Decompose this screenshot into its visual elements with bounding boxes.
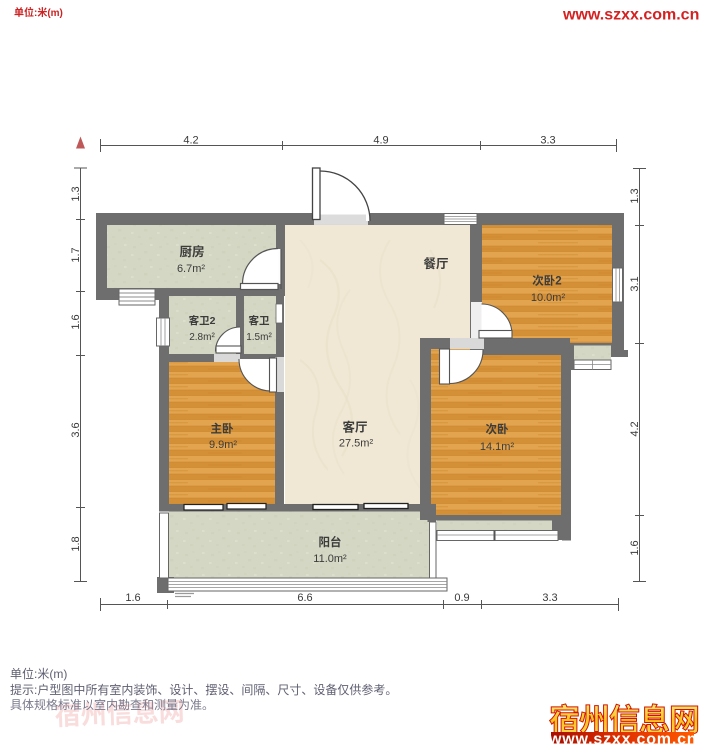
svg-text:客卫2: 客卫2: [189, 314, 216, 327]
svg-text:www.szxx.com.cn: www.szxx.com.cn: [562, 7, 699, 24]
svg-text:11.0m²: 11.0m²: [313, 553, 347, 565]
svg-text:6.7m²: 6.7m²: [177, 263, 205, 275]
svg-text:厨房: 厨房: [179, 244, 204, 259]
svg-text:3.6: 3.6: [70, 422, 82, 437]
svg-text:4.2: 4.2: [183, 135, 198, 147]
svg-text:3.1: 3.1: [629, 276, 641, 291]
svg-text:10.0m²: 10.0m²: [531, 292, 566, 304]
svg-text:具体规格标准以室内勘查和测量为准。: 具体规格标准以室内勘查和测量为准。: [10, 697, 214, 712]
svg-text:3.3: 3.3: [540, 135, 555, 147]
svg-text:单位:米(m): 单位:米(m): [10, 666, 67, 681]
svg-text:1.3: 1.3: [629, 188, 641, 203]
svg-text:www.szxx.com.cn: www.szxx.com.cn: [548, 731, 697, 748]
svg-text:餐厅: 餐厅: [423, 256, 448, 271]
svg-text:4.2: 4.2: [629, 421, 641, 436]
svg-text:1.6: 1.6: [70, 314, 82, 329]
svg-text:提示:户型图中所有室内装饰、设计、摆设、间隔、尺寸、设备仅供: 提示:户型图中所有室内装饰、设计、摆设、间隔、尺寸、设备仅供参考。: [10, 682, 397, 697]
svg-text:1.6: 1.6: [125, 592, 140, 604]
svg-text:4.9: 4.9: [373, 135, 388, 147]
svg-text:次卧2: 次卧2: [532, 274, 561, 288]
svg-text:14.1m²: 14.1m²: [480, 441, 515, 453]
svg-text:0.9: 0.9: [454, 592, 469, 604]
svg-text:2.8m²: 2.8m²: [189, 332, 215, 343]
svg-text:3.3: 3.3: [542, 592, 557, 604]
svg-text:次卧: 次卧: [486, 422, 509, 436]
svg-text:1.7: 1.7: [70, 247, 82, 262]
svg-text:27.5m²: 27.5m²: [339, 438, 374, 450]
svg-text:主卧: 主卧: [211, 422, 234, 436]
svg-text:阳台: 阳台: [319, 535, 342, 549]
svg-text:1.5m²: 1.5m²: [246, 332, 272, 343]
svg-text:1.8: 1.8: [70, 536, 82, 551]
svg-text:1.6: 1.6: [629, 540, 641, 555]
svg-text:客厅: 客厅: [342, 420, 367, 435]
svg-text:6.6: 6.6: [297, 592, 312, 604]
svg-text:客卫: 客卫: [249, 314, 270, 327]
svg-text:9.9m²: 9.9m²: [209, 439, 237, 451]
svg-text:1.3: 1.3: [70, 186, 82, 201]
svg-text:单位:米(m): 单位:米(m): [14, 6, 63, 19]
